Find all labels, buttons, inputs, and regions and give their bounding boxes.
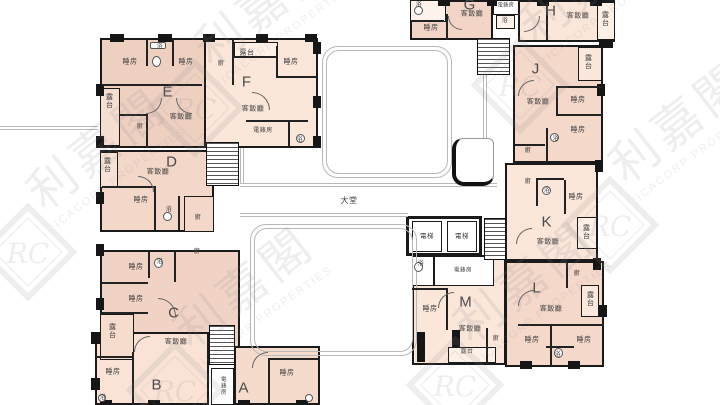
interior-wall xyxy=(102,84,202,86)
wall-pier xyxy=(599,305,607,317)
unit-label-K: K xyxy=(541,215,552,230)
room-label: 客飯廳 xyxy=(147,169,170,176)
room-label: 浴 xyxy=(416,2,423,8)
wall-pier xyxy=(203,34,215,42)
room-label: 睡房 xyxy=(424,25,439,32)
room-label: 電錶房 xyxy=(253,128,273,134)
wall-pier xyxy=(96,136,104,148)
interior-wall xyxy=(556,86,602,88)
room-label: 露台 xyxy=(583,224,590,240)
corridor-line xyxy=(0,126,98,127)
interior-wall xyxy=(246,120,308,122)
unit-label-A: A xyxy=(238,381,249,396)
lobby-toilet xyxy=(452,138,494,186)
courtyard-void-2 xyxy=(250,224,417,356)
interior-wall xyxy=(102,282,148,284)
room-label: 客飯廳 xyxy=(242,106,265,113)
room-label: 睡房 xyxy=(129,264,144,271)
wall-pier xyxy=(91,378,100,390)
wall-pier xyxy=(313,136,321,148)
interior-wall xyxy=(556,86,558,116)
interior-wall xyxy=(96,356,134,358)
room-label: 浴 xyxy=(157,259,164,265)
room-label: 露台 xyxy=(602,11,609,27)
room-label: 廚 xyxy=(137,124,144,130)
interior-wall xyxy=(154,186,156,230)
unit-label-J: J xyxy=(532,62,541,77)
unit-label-M: M xyxy=(459,295,473,310)
wall-pier xyxy=(590,0,602,6)
staircase-2 xyxy=(209,325,235,365)
room-label: 浴 xyxy=(157,44,164,50)
corridor-line xyxy=(240,148,241,183)
interior-wall xyxy=(546,128,548,162)
room-label: 電錶房 xyxy=(498,4,515,9)
staircase-4 xyxy=(484,218,506,260)
balcony-C xyxy=(100,314,134,360)
wall-pier xyxy=(148,400,160,405)
room-label: 廚 xyxy=(218,61,225,67)
room-label: 浴 xyxy=(502,18,509,24)
room-label: 客飯廳 xyxy=(461,11,484,18)
room-label: 浴 xyxy=(100,395,107,401)
interior-wall xyxy=(276,46,278,78)
room-label: 廚 xyxy=(574,271,581,277)
room-label: 睡房 xyxy=(129,296,144,303)
interior-wall xyxy=(566,262,568,288)
interior-wall xyxy=(120,114,146,116)
room-label: 電錶房 xyxy=(454,268,472,274)
wall-pier xyxy=(96,244,104,256)
interior-wall xyxy=(148,252,150,278)
room-label: 廚 xyxy=(195,215,202,221)
room-label: 廚 xyxy=(525,179,532,185)
room-label: 浴 xyxy=(297,137,304,143)
wall-pier xyxy=(305,34,317,42)
wall-pier xyxy=(256,34,268,42)
wall-pier xyxy=(599,40,613,48)
room-label: 浴 xyxy=(418,261,425,267)
room-label: 客飯廳 xyxy=(527,99,550,106)
interior-wall xyxy=(102,312,148,314)
room-label: 睡房 xyxy=(569,194,584,201)
room-label: 露台 xyxy=(109,323,116,339)
wall-pier xyxy=(593,258,601,270)
room-label: 睡房 xyxy=(123,59,138,66)
wall-pier xyxy=(438,0,450,6)
room-label: 客飯廳 xyxy=(459,326,482,333)
interior-wall xyxy=(268,358,270,405)
interior-wall xyxy=(518,324,604,326)
wall-pier xyxy=(158,34,172,42)
unit-label-B: B xyxy=(151,378,162,393)
interior-wall xyxy=(268,358,320,360)
unit-label-E: E xyxy=(162,85,173,100)
room-label: 睡房 xyxy=(571,97,586,104)
room-label: 浴 xyxy=(166,207,173,213)
room-label: 睡房 xyxy=(423,306,438,313)
room-label: 睡房 xyxy=(106,369,121,376)
room-label: 浴 xyxy=(553,136,560,142)
room-label: 睡房 xyxy=(571,127,586,134)
interior-wall xyxy=(174,252,176,282)
wall-pier xyxy=(417,332,425,362)
room-label: 廚 xyxy=(525,148,532,154)
interior-wall xyxy=(412,288,448,290)
interior-wall xyxy=(556,114,602,116)
room-label: 電梯 xyxy=(455,233,469,240)
wall-pier xyxy=(96,192,104,204)
courtyard-void-1 xyxy=(322,46,452,178)
wall-pier xyxy=(568,361,580,369)
room-label: 大堂 xyxy=(341,197,358,205)
interior-wall xyxy=(132,352,134,405)
room-label: 客飯廳 xyxy=(567,13,590,20)
staircase-1 xyxy=(206,142,239,186)
floor-plan: RC RICACORP PROPERTIES 利嘉閣 EFDCBAGHJKLM睡… xyxy=(0,0,720,405)
wall-pier xyxy=(110,34,124,42)
room-label: 露台 xyxy=(240,50,255,57)
interior-wall xyxy=(288,120,290,146)
room-label: 浴 xyxy=(544,188,551,194)
wall-pier xyxy=(313,96,321,108)
room-label: 睡房 xyxy=(284,59,299,66)
wall-pier xyxy=(238,400,250,405)
unit-label-L: L xyxy=(532,281,541,296)
room-label: 客飯廳 xyxy=(165,339,188,346)
room-label: 客飯廳 xyxy=(537,239,560,246)
room-label: 露台 xyxy=(460,349,473,355)
unit-label-C: C xyxy=(168,306,180,321)
wall-pier xyxy=(595,160,603,172)
room-label: 客飯廳 xyxy=(540,306,563,313)
room-label: 露台 xyxy=(104,157,111,173)
toilet-fixture-icon xyxy=(152,56,161,67)
room-label: 睡房 xyxy=(577,337,592,344)
wall-pier xyxy=(487,0,497,6)
wall-pier xyxy=(96,298,104,310)
room-label: 露台 xyxy=(106,93,113,109)
room-label: 露台 xyxy=(587,291,594,307)
room-label: 睡房 xyxy=(280,370,295,377)
interior-wall xyxy=(536,178,564,180)
room-label: 睡房 xyxy=(525,337,540,344)
unit-label-F: F xyxy=(242,75,252,90)
interior-wall xyxy=(515,144,545,146)
interior-wall xyxy=(178,196,180,230)
interior-wall xyxy=(172,40,174,66)
room-label: 電錶房 xyxy=(219,376,225,396)
interior-wall xyxy=(410,20,444,22)
wall-pier xyxy=(313,42,321,54)
room-label: 廚 xyxy=(493,336,500,342)
interior-wall xyxy=(536,178,538,206)
interior-wall xyxy=(564,180,566,214)
room-label: 廚 xyxy=(194,249,201,255)
toilet-fixture-icon xyxy=(305,394,313,402)
interior-wall xyxy=(276,76,316,78)
room-label: 浴 xyxy=(555,352,562,358)
interior-wall xyxy=(486,328,488,364)
toilet-fixture-icon xyxy=(163,212,172,221)
room-label: 客飯廳 xyxy=(170,114,193,121)
room-label: 電梯 xyxy=(420,233,434,240)
interior-wall xyxy=(146,40,148,66)
wall-pier xyxy=(91,332,100,344)
wall-pier xyxy=(520,361,532,369)
interior-wall xyxy=(146,114,148,148)
room-label: 睡房 xyxy=(179,59,194,66)
corridor-line xyxy=(240,213,408,214)
room-label: 睡房 xyxy=(134,197,149,204)
room-label: 露台 xyxy=(585,54,592,70)
wall-pier xyxy=(452,330,460,348)
interior-wall xyxy=(232,40,234,85)
unit-label-H: H xyxy=(545,4,557,19)
staircase-3 xyxy=(477,38,510,75)
